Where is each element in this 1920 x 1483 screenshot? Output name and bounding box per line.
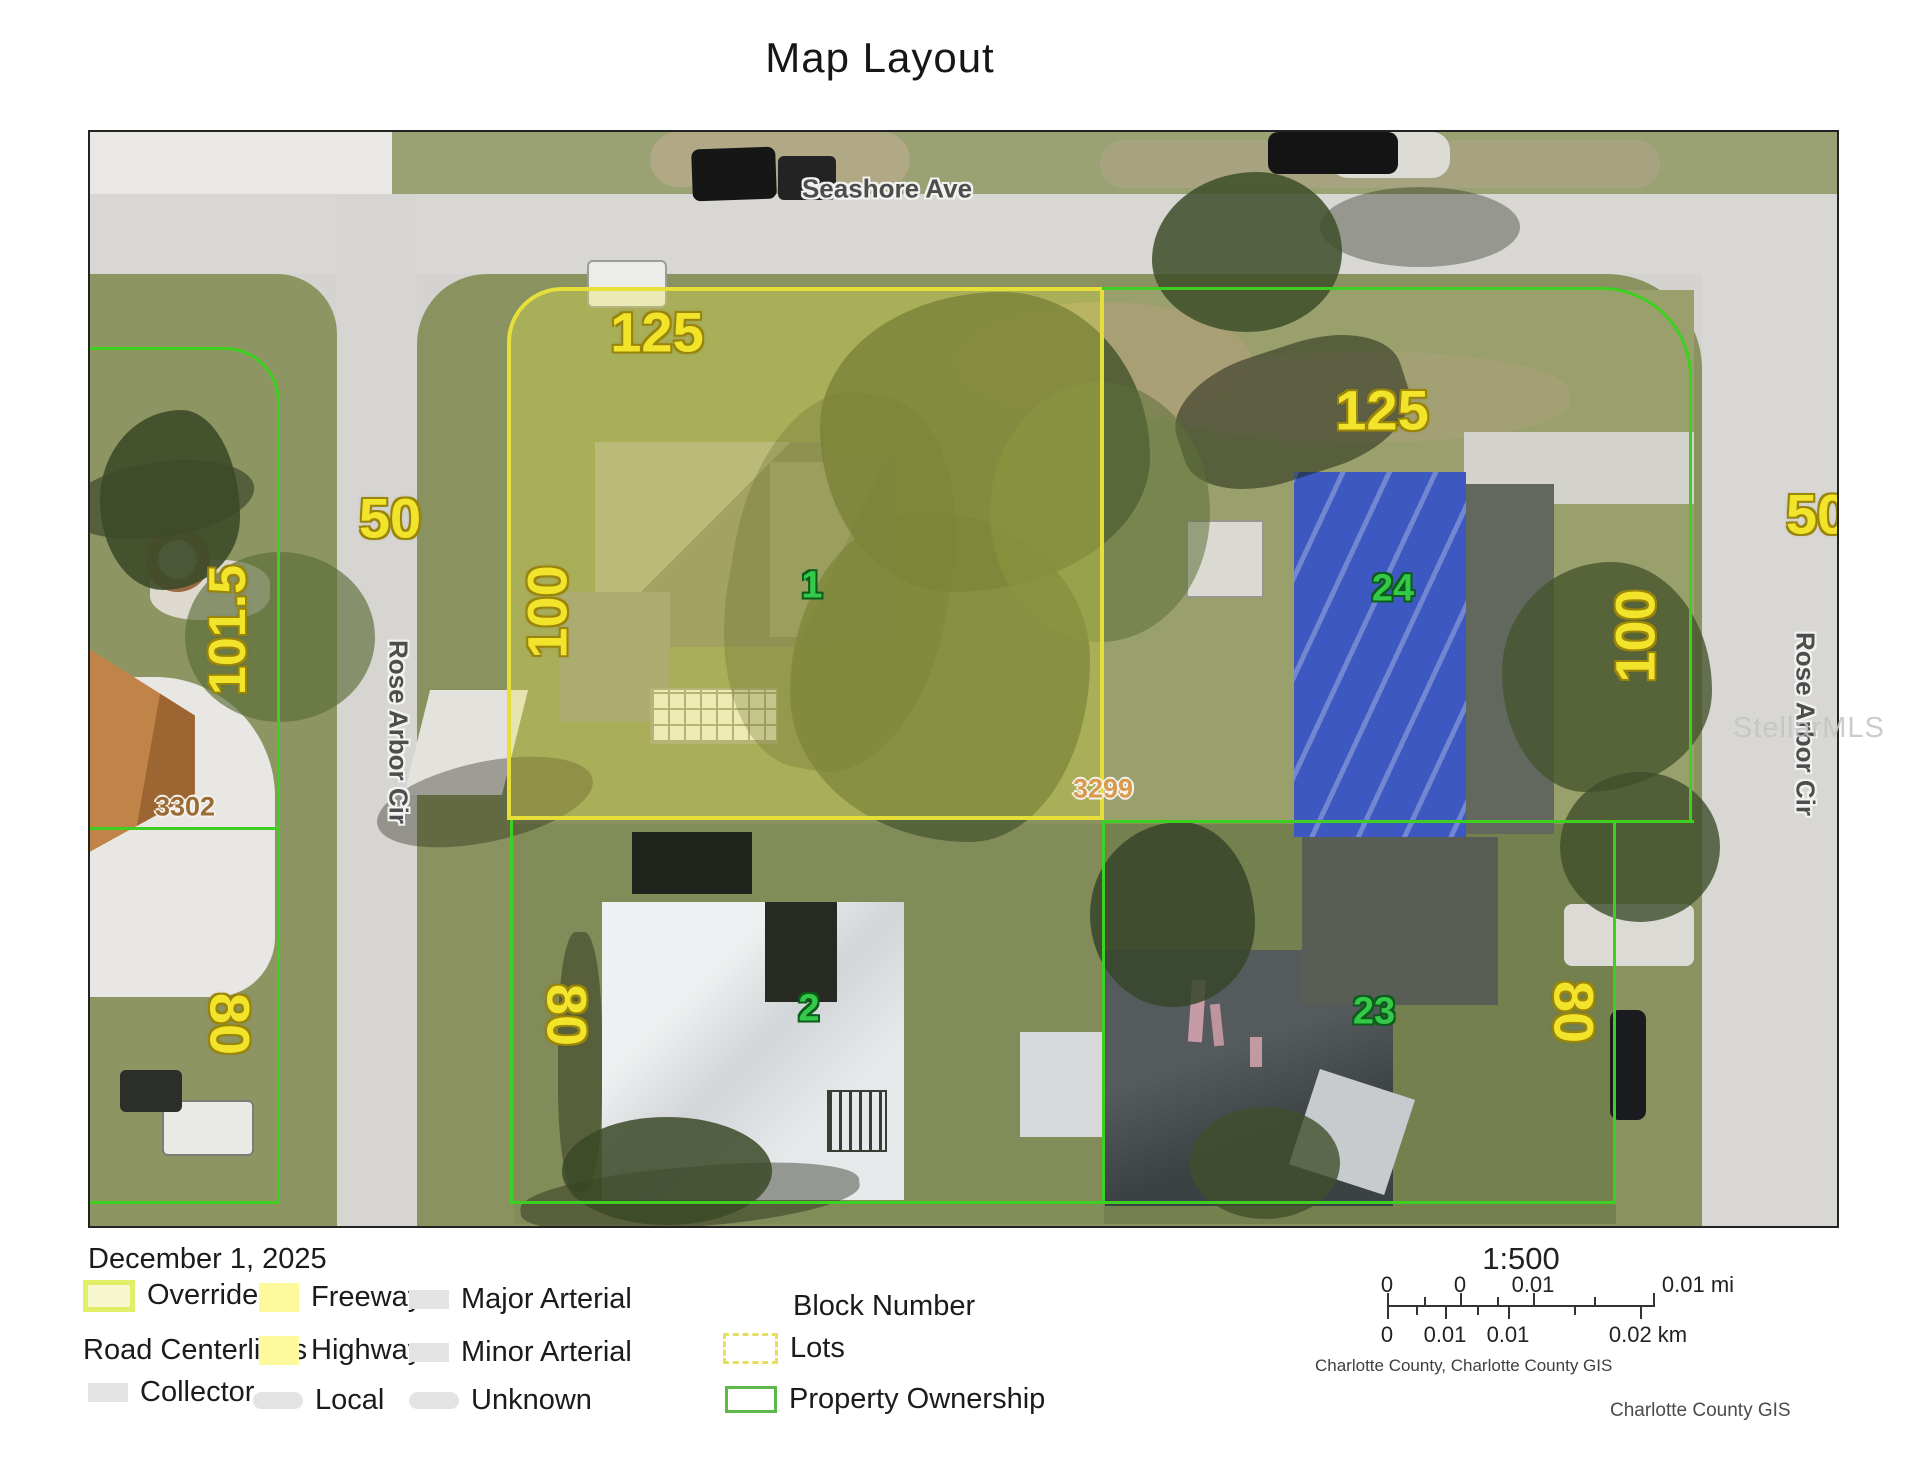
scale-tick: [1445, 1307, 1447, 1319]
lot-number: 23: [1353, 991, 1395, 1034]
minor-arterial-swatch: [409, 1343, 449, 1362]
scale-km-label: 0: [1381, 1322, 1393, 1348]
legend-item-unknown: Unknown: [409, 1384, 592, 1417]
property-line: [277, 827, 280, 1204]
page-title: Map Layout: [180, 34, 1580, 82]
map-layout-page: Map Layout: [0, 0, 1920, 1483]
property-line-lot24: [1102, 287, 1692, 820]
scale-tick: [1508, 1307, 1510, 1319]
dimension-label: 80: [198, 993, 263, 1055]
street-label-rose-arbor-cir-left: Rose Arbor Cir: [383, 640, 414, 824]
tree-shadow: [1320, 187, 1520, 267]
scale-tick: [1497, 1297, 1499, 1305]
legend-item-minor-arterial: Minor Arterial: [409, 1336, 632, 1369]
car: [1268, 132, 1398, 174]
scale-tick: [1387, 1307, 1389, 1319]
highway-swatch: [259, 1336, 299, 1365]
legend-item-local: Local: [253, 1384, 384, 1417]
scale-km-label: 0.01: [1424, 1322, 1467, 1348]
car: [691, 147, 777, 202]
street-label-seashore-ave: Seashore Ave: [802, 174, 972, 205]
map-credit: Charlotte County GIS: [1610, 1400, 1791, 1422]
property-ownership-swatch: [725, 1386, 777, 1413]
legend-item-collector: Collector: [88, 1376, 254, 1409]
scale-tick: [1424, 1297, 1426, 1305]
legend-item-major-arterial: Major Arterial: [409, 1283, 632, 1316]
block-number-label: 3299: [1073, 774, 1133, 805]
dimension-label: 100: [1603, 589, 1668, 682]
dimension-label: 80: [1542, 981, 1607, 1043]
dimension-label: 101.5: [198, 565, 258, 695]
scale-tick: [1477, 1307, 1479, 1315]
aerial-map: Seashore Ave Rose Arbor Cir Rose Arbor C…: [88, 130, 1839, 1228]
unknown-swatch: [409, 1392, 459, 1409]
legend-item-property-ownership: Property Ownership: [725, 1383, 1045, 1416]
collector-swatch: [88, 1383, 128, 1402]
legend-item-highway: Highway: [259, 1334, 422, 1367]
stellar-mls-watermark: StellarMLS: [1733, 712, 1885, 745]
legend-item-freeway: Freeway: [259, 1281, 422, 1314]
property-line: [90, 1201, 280, 1204]
scale-tick: [1640, 1307, 1642, 1319]
scale-tick: [1653, 1293, 1655, 1305]
legend-item-override: Override 1: [83, 1279, 282, 1312]
legend-label: Minor Arterial: [461, 1336, 632, 1369]
legend-label: Local: [315, 1384, 384, 1417]
scale-tick: [1416, 1307, 1418, 1315]
legend-date: December 1, 2025: [88, 1243, 327, 1276]
legend-label: Block Number: [793, 1290, 975, 1323]
freeway-swatch: [259, 1283, 299, 1312]
scale-tick: [1387, 1293, 1389, 1305]
property-line: [1102, 820, 1694, 823]
dimension-label: 50: [359, 486, 421, 551]
pavement-top-left: [90, 132, 420, 194]
local-swatch: [253, 1392, 303, 1409]
property-line: [90, 827, 280, 830]
scale-tick: [1460, 1293, 1462, 1305]
legend-item-lots: Lots: [723, 1332, 845, 1365]
lot-number: 1: [801, 565, 822, 608]
scale-mi-label: 0.01 mi: [1662, 1272, 1734, 1298]
legend-label: Unknown: [471, 1384, 592, 1417]
override-swatch: [83, 1280, 135, 1312]
scale-bar-line: [1387, 1305, 1655, 1307]
legend-label: Lots: [790, 1332, 845, 1365]
lots-swatch: [723, 1333, 778, 1364]
dimension-label: 100: [515, 565, 580, 658]
boat-cover: [120, 1070, 182, 1112]
highlighted-parcel-lot1: [507, 287, 1104, 820]
scale-km-label: 0.01: [1487, 1322, 1530, 1348]
property-line: [1102, 820, 1105, 1204]
dimension-label: 125: [610, 300, 703, 365]
lot-number: 24: [1372, 568, 1414, 611]
scale-tick: [1574, 1307, 1576, 1315]
legend-label: Freeway: [311, 1281, 422, 1314]
legend-label: Collector: [140, 1376, 254, 1409]
block-number-label: 3302: [155, 792, 215, 823]
legend-item-block-number: Block Number: [793, 1290, 975, 1323]
major-arterial-swatch: [409, 1290, 449, 1309]
dimension-label: 50: [1786, 482, 1839, 547]
dimension-label: 80: [535, 984, 600, 1046]
scale-tick: [1594, 1297, 1596, 1305]
legend-label: Major Arterial: [461, 1283, 632, 1316]
legend-label: Highway: [311, 1334, 422, 1367]
map-source-attribution: Charlotte County, Charlotte County GIS: [1315, 1356, 1612, 1376]
legend-label: Property Ownership: [789, 1383, 1045, 1416]
property-line-lower-lots: [510, 820, 1616, 1204]
scale-km-label: 0.02 km: [1609, 1322, 1687, 1348]
scale-tick: [1533, 1293, 1535, 1305]
dimension-label: 125: [1335, 378, 1428, 443]
lot-number: 2: [798, 988, 819, 1031]
